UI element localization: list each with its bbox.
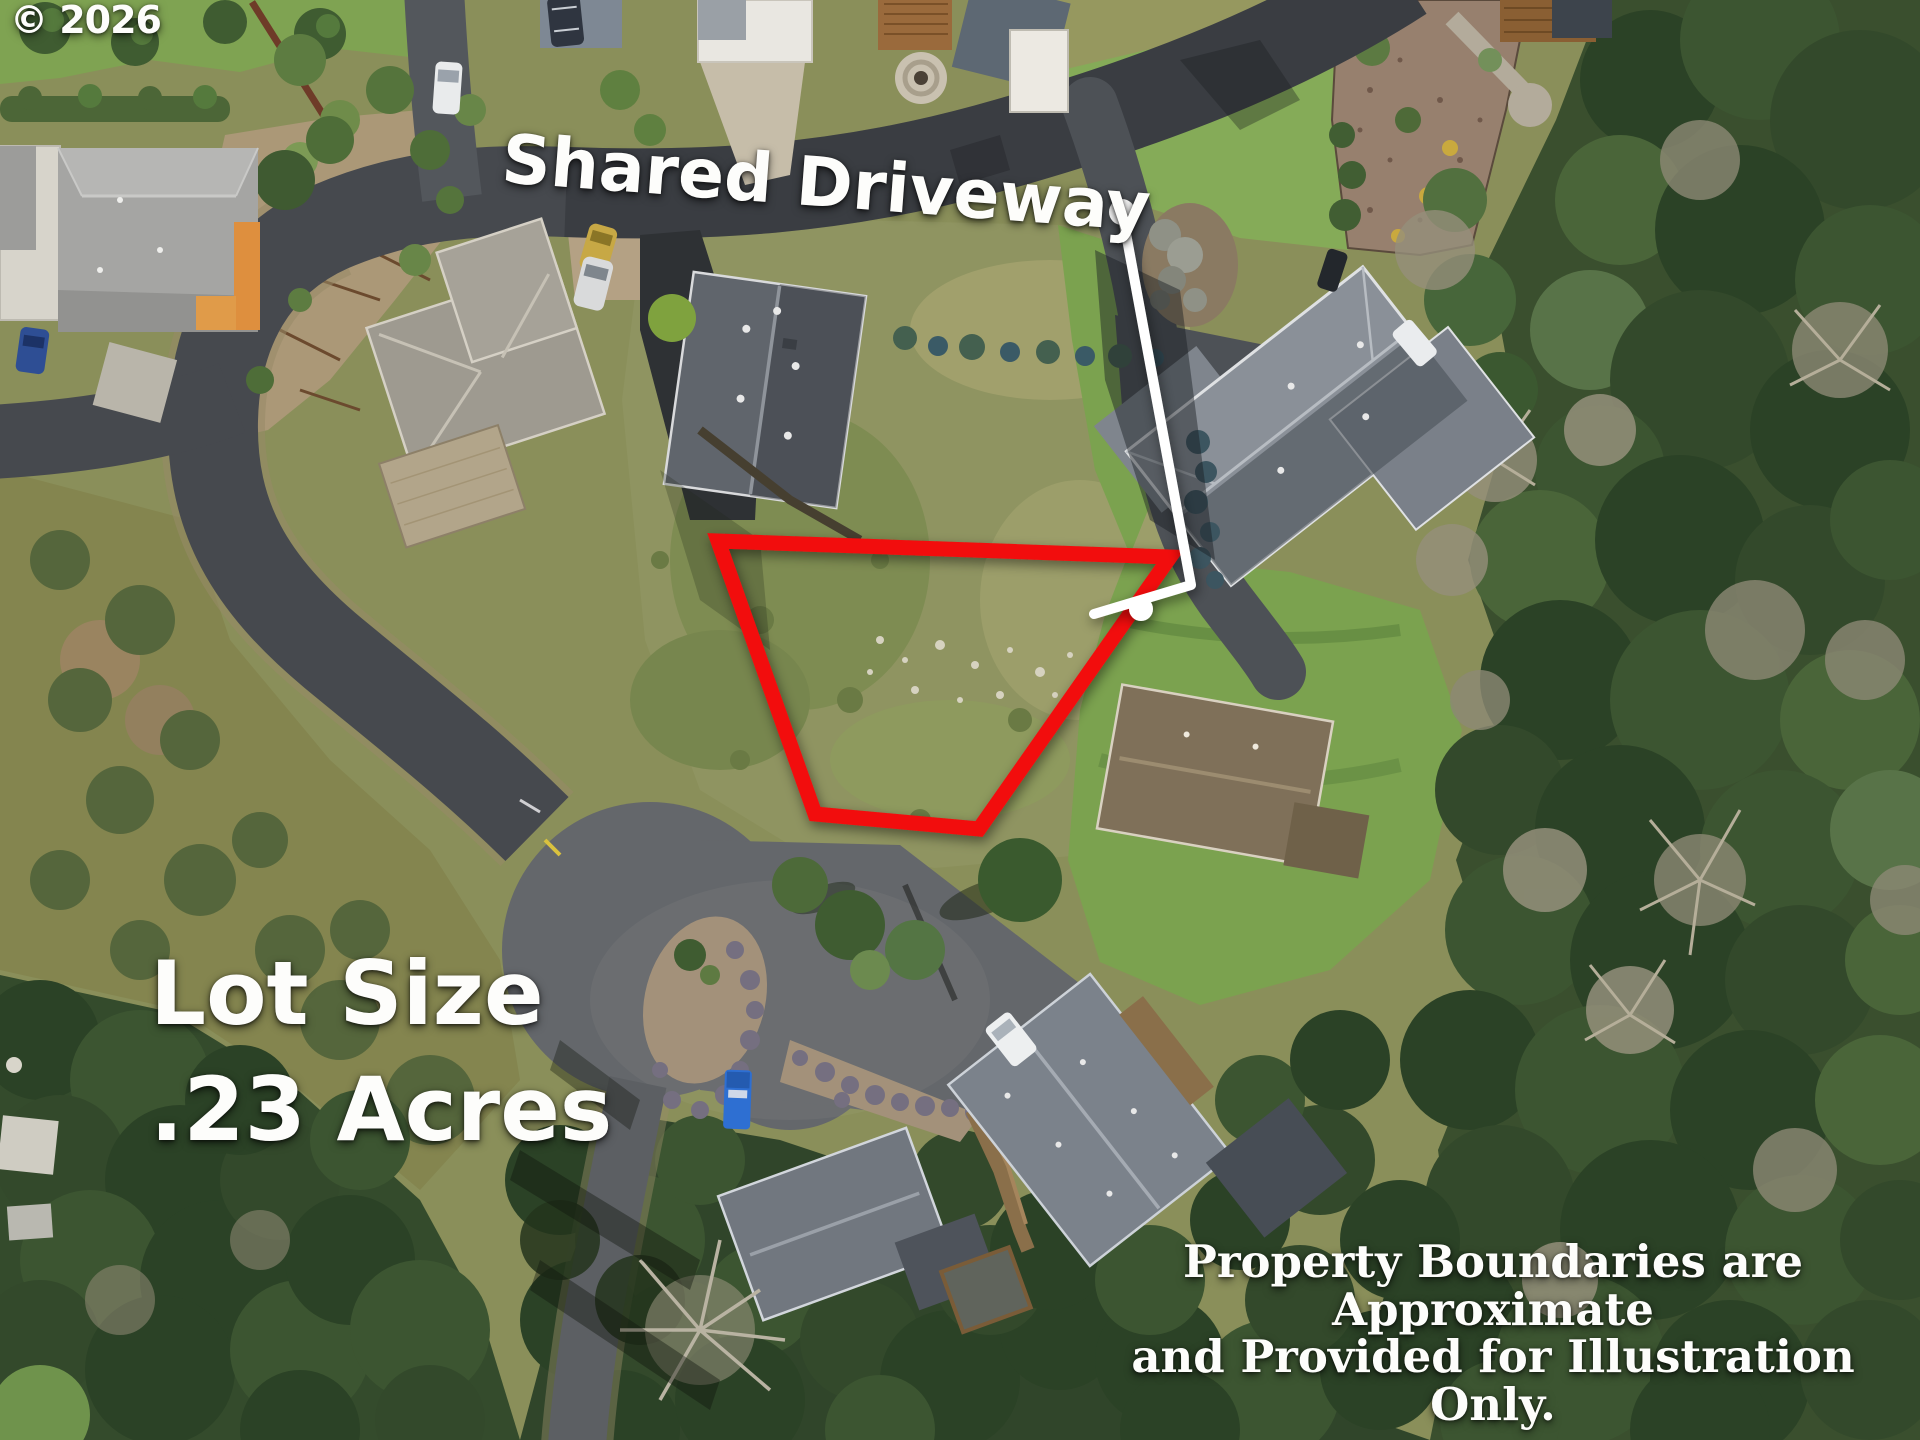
disclaimer: Property Boundaries are Approximate and …: [1110, 1238, 1876, 1429]
lot-size-label: Lot Size .23 Acres: [150, 936, 612, 1168]
copyright-watermark: © 2026: [10, 1, 161, 39]
callout-dot-end: [1129, 597, 1153, 621]
aerial-photo: © 2026 Shared Driveway Lot Size .23 Acre…: [0, 0, 1920, 1440]
car-blue: [15, 326, 50, 375]
bright-tree: [648, 294, 696, 342]
disclaimer-line1: Property Boundaries are Approximate: [1110, 1238, 1876, 1333]
house-left-edge: [0, 146, 60, 320]
house-top-right-white: [1010, 30, 1068, 112]
car-white: [432, 61, 463, 115]
disclaimer-line2: and Provided for Illustration Only.: [1110, 1333, 1876, 1428]
lot-size-line1: Lot Size: [150, 936, 612, 1052]
van-dark: [547, 0, 585, 48]
truck-blue: [723, 1070, 752, 1130]
house-top-left: [58, 148, 260, 332]
house-upper-middle: [664, 272, 866, 508]
lot-size-line2: .23 Acres: [150, 1052, 612, 1168]
